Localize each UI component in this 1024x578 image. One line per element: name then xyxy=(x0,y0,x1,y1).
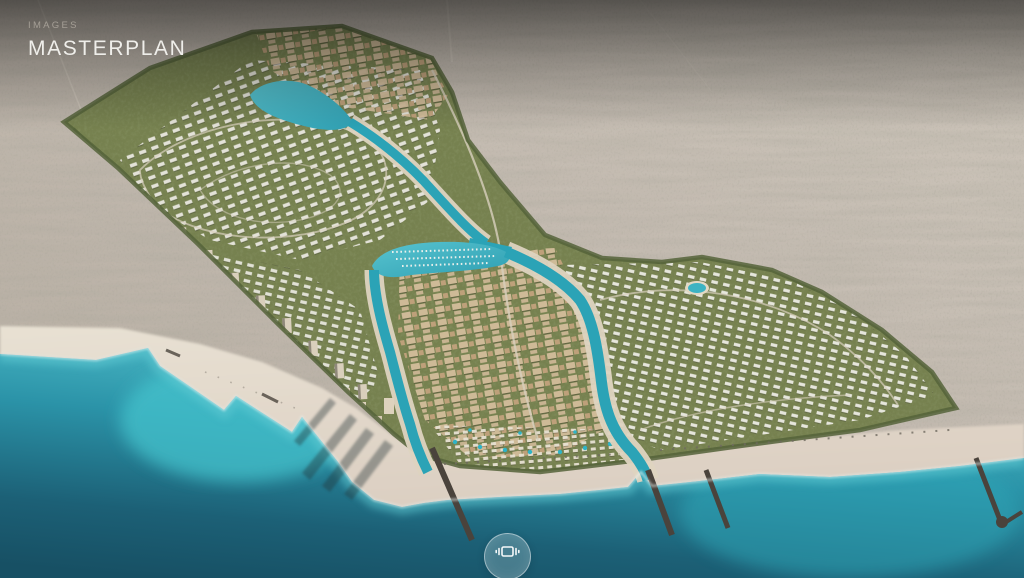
pan-hint-button[interactable] xyxy=(484,533,531,578)
community-pool xyxy=(685,281,709,295)
masterplan-render xyxy=(0,0,1024,578)
masterplan-viewer[interactable]: IMAGES MASTERPLAN xyxy=(0,0,1024,578)
pan-360-icon xyxy=(495,542,520,561)
